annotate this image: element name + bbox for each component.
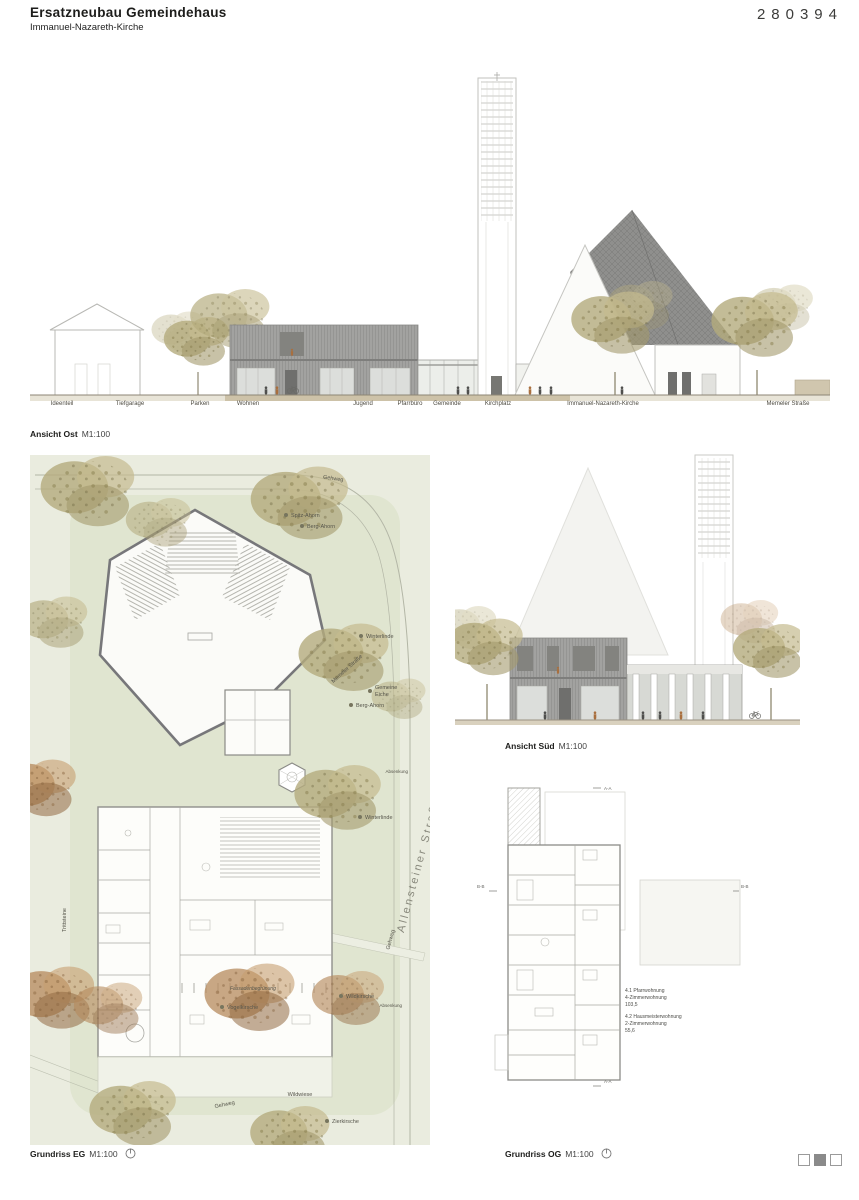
- page-title: Ersatzneubau Gemeindehaus: [30, 5, 227, 20]
- ground-label: Gemeinde: [433, 401, 461, 407]
- label-eiche-1: Gemeine: [375, 685, 397, 691]
- label-wildwiese: Wildwiese: [288, 1092, 313, 1098]
- ground-label: Immanuel-Nazareth-Kirche: [567, 401, 639, 407]
- label-berg-ahorn-2: Berg-Ahorn: [356, 703, 384, 709]
- annotation-line: 4-Zimmerwohnung: [625, 995, 667, 1001]
- label-wildkirsche: Wildkirsche: [346, 994, 374, 1000]
- south-ground-line: [455, 720, 800, 725]
- east-ground-labels: Ideenteil Tiefgarage Parken Wohnen Jugen…: [30, 401, 830, 413]
- label-absenkung-2: Absenkung: [379, 1003, 402, 1008]
- annotation-line: 4.1 Pfarrwohnung: [625, 988, 665, 994]
- caption-scale: M1:100: [559, 741, 587, 751]
- south-building: [510, 638, 627, 720]
- ground-label: Ideenteil: [51, 401, 74, 407]
- entry-number: 280394: [757, 6, 843, 23]
- marker-bb-right: B-B: [741, 884, 749, 889]
- caption-scale: M1:100: [89, 1149, 117, 1159]
- page-indicator-square: [798, 1154, 810, 1166]
- caption-grundriss-eg: Grundriss EG M1:100: [30, 1148, 136, 1159]
- caption-title: Ansicht Ost: [30, 429, 78, 439]
- caption-ansicht-ost: Ansicht Ost M1:100: [30, 429, 110, 439]
- label-berg-ahorn-1: Berg-Ahorn: [307, 524, 335, 530]
- page-indicator-square-active: [814, 1154, 826, 1166]
- annotation-line: 103,5: [625, 1002, 638, 1008]
- ground-label: Jugend: [353, 401, 373, 407]
- caption-ansicht-sued: Ansicht Süd M1:100: [505, 741, 587, 751]
- ground-label: Tiefgarage: [116, 401, 144, 407]
- og-annotation: 4.1 Pfarrwohnung 4-Zimmerwohnung 103,5 4…: [625, 988, 682, 1034]
- caption-title: Grundriss EG: [30, 1149, 85, 1159]
- page-subtitle: Immanuel-Nazareth-Kirche: [30, 22, 227, 33]
- annotation-line: 2-Zimmerwohnung: [625, 1021, 667, 1027]
- caption-title: Grundriss OG: [505, 1149, 561, 1159]
- marker-bb-left: B-B: [477, 884, 485, 889]
- south-elevation-drawing: [455, 452, 800, 737]
- label-fassadenbegruenung: Fassadenbegrünung: [230, 986, 276, 992]
- north-arrow-icon: [601, 1148, 612, 1159]
- existing-building: [50, 304, 144, 395]
- label-zierkirsche: Zierkirsche: [332, 1119, 359, 1125]
- label-absenkung-1: Absenkung: [385, 769, 408, 774]
- og-apartments: [495, 845, 620, 1080]
- label-eiche-2: Eiche: [375, 692, 389, 698]
- ground-label: Pfarrbüro: [397, 401, 422, 407]
- marker-aa-bottom: A-A: [604, 1079, 612, 1084]
- competition-board: Ersatzneubau Gemeindehaus Immanuel-Nazar…: [0, 0, 859, 1200]
- north-arrow-icon: [125, 1148, 136, 1159]
- caption-grundriss-og: Grundriss OG M1:100: [505, 1148, 612, 1159]
- label-vogelkirsche: Vogelkirsche: [227, 1005, 258, 1011]
- stair: [508, 788, 540, 845]
- caption-scale: M1:100: [565, 1149, 593, 1159]
- site-plan-drawing: Gehweg Spitz-Ahorn Berg-Ahorn Winterlind…: [30, 455, 430, 1145]
- title-block: Ersatzneubau Gemeindehaus Immanuel-Nazar…: [30, 5, 227, 33]
- east-elevation-drawing: [30, 72, 830, 407]
- page-indicator: [798, 1154, 842, 1166]
- caption-scale: M1:100: [82, 429, 110, 439]
- annotation-line: 55,6: [625, 1028, 635, 1034]
- og-plan-drawing: 4.1 Pfarrwohnung 4-Zimmerwohnung 103,5 4…: [475, 780, 760, 1095]
- label-winterlinde-1: Winterlinde: [366, 634, 394, 640]
- community-building-plan: [98, 807, 332, 1097]
- annotation-line: 4.2 Hausmeisterwohnung: [625, 1014, 682, 1020]
- page-indicator-square: [830, 1154, 842, 1166]
- roof-terrace: [640, 880, 740, 965]
- community-building-elevation: [230, 325, 418, 395]
- label-trittsteine: Trittsteine: [62, 908, 68, 932]
- colonnade-wing: [627, 665, 742, 720]
- caption-title: Ansicht Süd: [505, 741, 555, 751]
- ground-label: Memeler Straße: [766, 401, 809, 407]
- marker-aa-top: A-A: [604, 786, 612, 791]
- church-tower: [478, 72, 516, 395]
- church-silhouette: [508, 468, 668, 655]
- label-winterlinde-2: Winterlinde: [365, 815, 393, 821]
- ground-label: Kirchplatz: [485, 401, 511, 407]
- label-spitz-ahorn: Spitz-Ahorn: [291, 513, 320, 519]
- ground-label: Wohnen: [237, 401, 259, 407]
- ground-label: Parken: [190, 401, 209, 407]
